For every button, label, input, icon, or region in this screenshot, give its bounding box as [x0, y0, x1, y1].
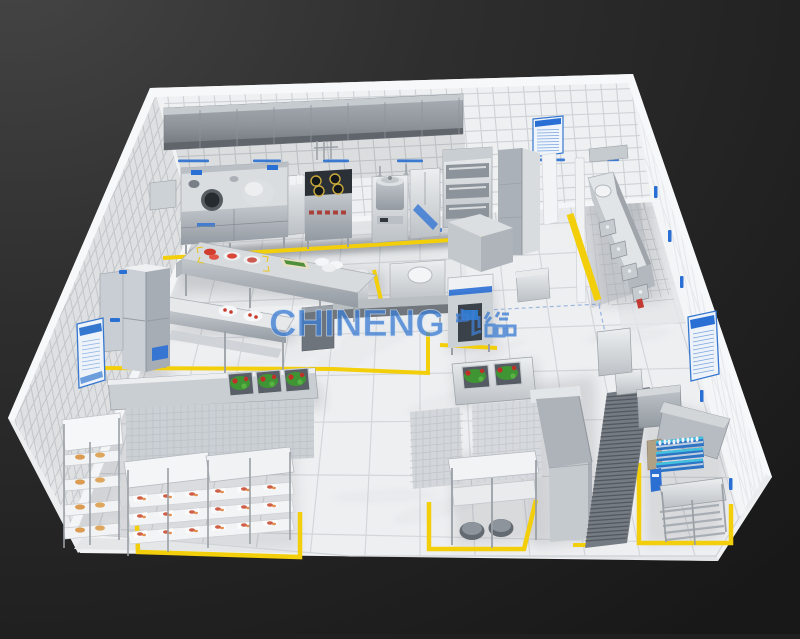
svg-text:CHINENG: CHINENG — [269, 303, 445, 345]
